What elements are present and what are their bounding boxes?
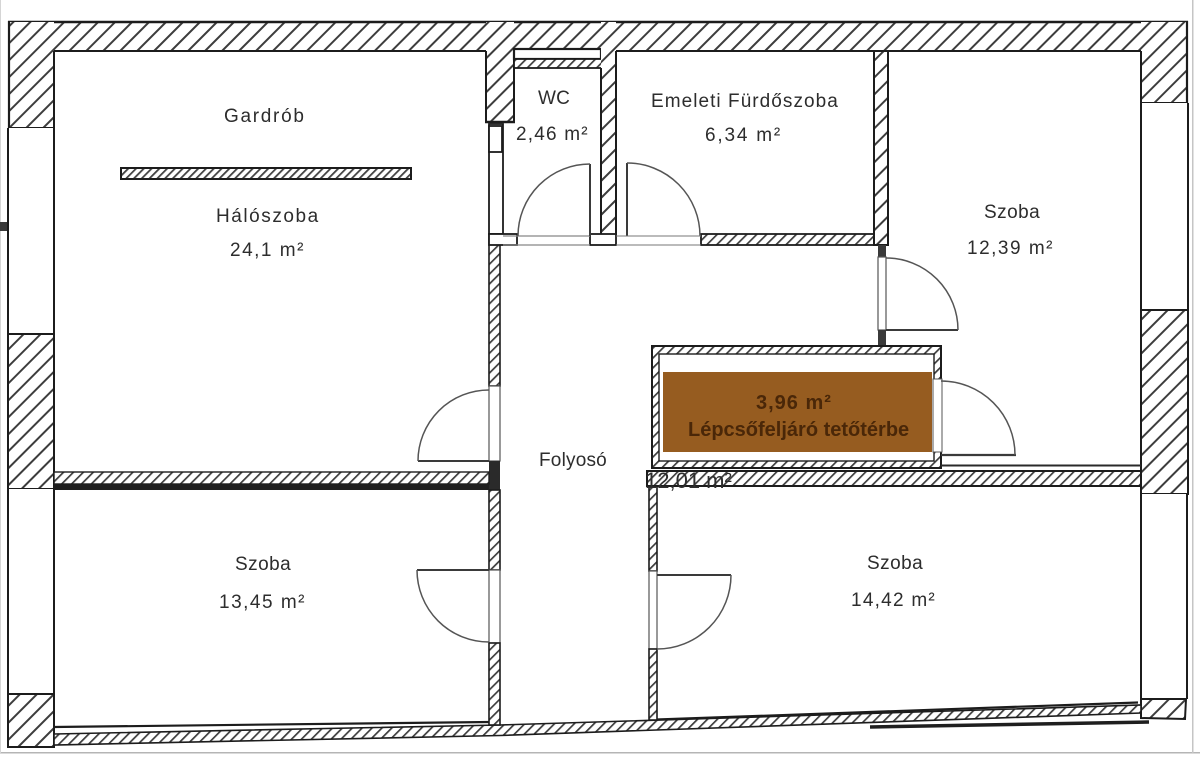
svg-text:Szoba: Szoba — [867, 553, 923, 574]
svg-text:Szoba: Szoba — [235, 554, 291, 575]
svg-text:Hálószoba: Hálószoba — [216, 206, 320, 227]
svg-text:13,45 m²: 13,45 m² — [219, 592, 306, 613]
svg-text:14,42 m²: 14,42 m² — [851, 590, 936, 611]
svg-text:Szoba: Szoba — [984, 202, 1040, 223]
svg-text:12,39 m²: 12,39 m² — [967, 238, 1054, 259]
svg-text:Emeleti Fürdőszoba: Emeleti Fürdőszoba — [651, 91, 839, 112]
svg-text:Folyosó: Folyosó — [539, 450, 607, 471]
svg-text:Gardrób: Gardrób — [224, 106, 306, 127]
svg-text:12,01 m²: 12,01 m² — [645, 468, 732, 493]
svg-text:Lépcsőfeljáró tetőtérbe: Lépcsőfeljáró tetőtérbe — [688, 419, 909, 441]
svg-text:24,1 m²: 24,1 m² — [230, 240, 305, 261]
svg-text:2,46 m²: 2,46 m² — [516, 124, 589, 145]
svg-text:3,96 m²: 3,96 m² — [756, 392, 832, 414]
svg-text:WC: WC — [538, 88, 570, 109]
svg-text:6,34 m²: 6,34 m² — [705, 125, 782, 146]
